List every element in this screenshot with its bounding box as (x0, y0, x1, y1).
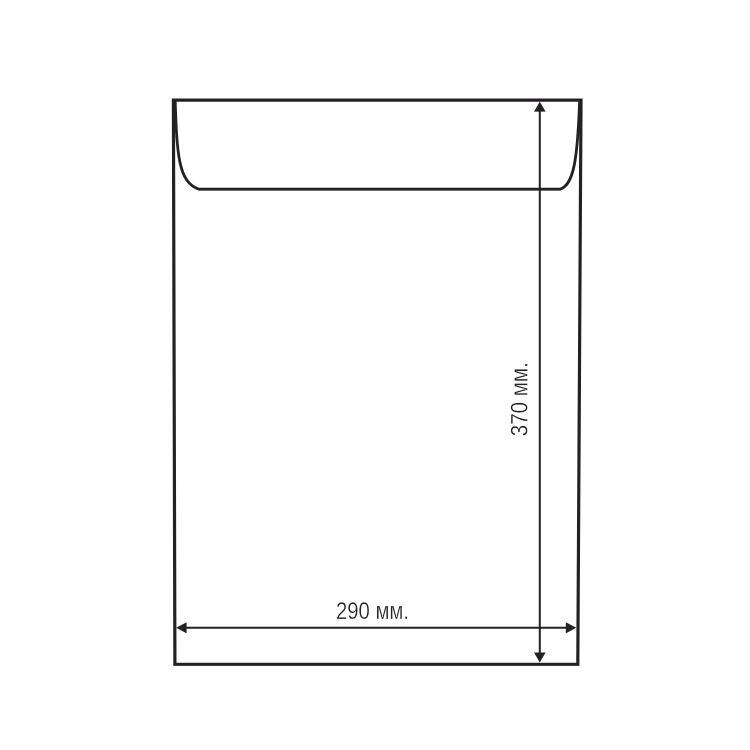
svg-text:290 мм.: 290 мм. (336, 598, 409, 625)
svg-text:370 мм.: 370 мм. (507, 362, 534, 436)
